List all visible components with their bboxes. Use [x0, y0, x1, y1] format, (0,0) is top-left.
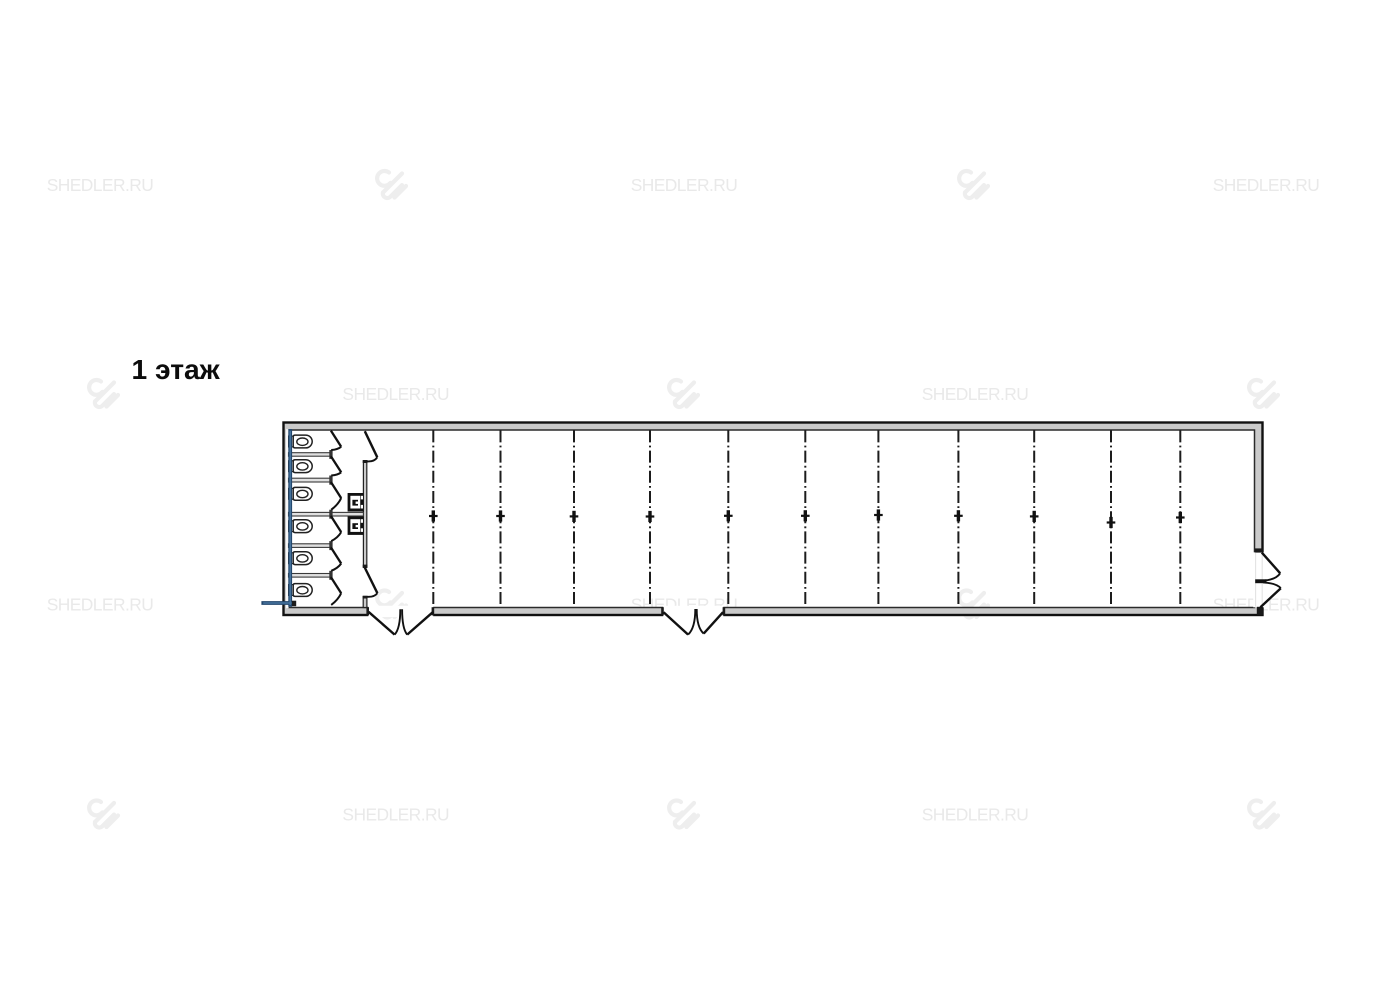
svg-text:SHEDLER.RU: SHEDLER.RU: [47, 175, 154, 195]
svg-text:SHEDLER.RU: SHEDLER.RU: [47, 594, 154, 614]
svg-text:SHEDLER.RU: SHEDLER.RU: [1213, 175, 1320, 195]
svg-text:SHEDLER.RU: SHEDLER.RU: [631, 175, 738, 195]
svg-text:SHEDLER.RU: SHEDLER.RU: [342, 804, 449, 824]
svg-text:SHEDLER.RU: SHEDLER.RU: [922, 384, 1029, 404]
svg-text:SHEDLER.RU: SHEDLER.RU: [922, 804, 1029, 824]
svg-text:1 этаж: 1 этаж: [132, 353, 221, 385]
svg-text:SHEDLER.RU: SHEDLER.RU: [342, 384, 449, 404]
